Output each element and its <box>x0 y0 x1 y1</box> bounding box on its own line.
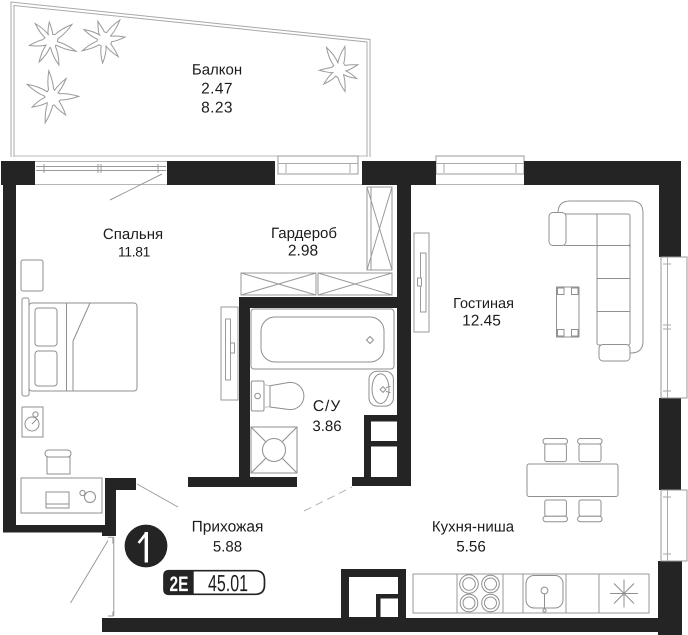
svg-text:Гостиная: Гостиная <box>453 296 514 312</box>
svg-text:Прихожая: Прихожая <box>192 518 264 535</box>
svg-text:5.56: 5.56 <box>456 538 486 555</box>
svg-text:8.23: 8.23 <box>201 99 233 116</box>
svg-text:2.98: 2.98 <box>288 242 318 259</box>
svg-text:12.45: 12.45 <box>462 312 501 329</box>
svg-text:Гардероб: Гардероб <box>271 225 337 242</box>
svg-text:С/У: С/У <box>313 398 341 415</box>
svg-text:45.01: 45.01 <box>208 571 248 597</box>
svg-text:Кухня-ниша: Кухня-ниша <box>432 518 515 535</box>
svg-text:2.47: 2.47 <box>201 80 233 97</box>
svg-text:Балкон: Балкон <box>192 61 242 78</box>
svg-text:3.86: 3.86 <box>312 418 341 435</box>
svg-text:2Е: 2Е <box>170 572 189 596</box>
svg-text:Спальня: Спальня <box>103 226 163 243</box>
svg-text:5.88: 5.88 <box>213 538 242 555</box>
svg-text:11.81: 11.81 <box>118 244 150 259</box>
